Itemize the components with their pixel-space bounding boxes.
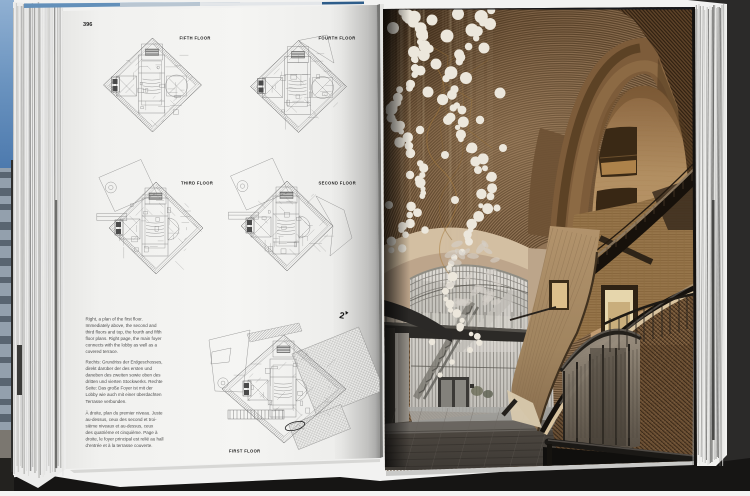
svg-text:FOURTH FLOOR: FOURTH FLOOR	[319, 36, 356, 41]
svg-text:FIFTH FLOOR: FIFTH FLOOR	[180, 36, 211, 41]
svg-text:droite, le foyer principal est: droite, le foyer principal est relié au …	[86, 437, 164, 442]
svg-text:SECOND FLOOR: SECOND FLOOR	[319, 181, 357, 186]
svg-text:au-dessus, ceux des second et: au-dessus, ceux des second et troi-	[86, 417, 158, 422]
svg-text:FIRST FLOOR: FIRST FLOOR	[229, 449, 260, 454]
svg-text:Right, a plan of the first flo: Right, a plan of the first floor.	[86, 317, 143, 322]
svg-text:Seite: Das große Foyer ist mit: Seite: Das große Foyer ist mit der	[86, 386, 154, 391]
svg-text:396: 396	[83, 22, 92, 28]
svg-text:À droite, plan du premier nive: À droite, plan du premier niveau. Juste	[86, 410, 164, 416]
svg-text:floor plans. Right page, the m: floor plans. Right page, the main foyer	[86, 336, 163, 341]
svg-text:dritten und vierten Stockwerks: dritten und vierten Stockwerks. Rechte	[86, 379, 164, 384]
svg-text:Immediately above, the second: Immediately above, the second and	[86, 323, 158, 328]
svg-text:Terrasse verbunden.: Terrasse verbunden.	[86, 399, 127, 404]
svg-text:des quatrième et cinquième. Pa: des quatrième et cinquième. Page à	[86, 430, 159, 435]
svg-text:d’entrée et à la terrasse couv: d’entrée et à la terrasse couverte.	[86, 443, 153, 448]
svg-text:third floors and top, the four: third floors and top, the fourth and fif…	[86, 330, 163, 335]
svg-text:daneben des zweiten sowie oben: daneben des zweiten sowie oben des	[86, 373, 162, 378]
svg-text:direkt darüber der des ersten: direkt darüber der des ersten und	[86, 366, 153, 371]
svg-text:Lobby wie auch mit einer überd: Lobby wie auch mit einer überdachten	[86, 392, 163, 397]
svg-text:covered terrace.: covered terrace.	[86, 349, 119, 354]
svg-text:THIRD FLOOR: THIRD FLOOR	[181, 181, 213, 186]
svg-text:sième niveaux et au-dessus, ce: sième niveaux et au-dessus, ceux	[86, 424, 155, 429]
svg-text:connects with the lobby as wel: connects with the lobby as well as a	[86, 343, 158, 348]
svg-text:Rechts: Grundriss der Erdgesch: Rechts: Grundriss der Erdgeschosses,	[86, 360, 163, 365]
